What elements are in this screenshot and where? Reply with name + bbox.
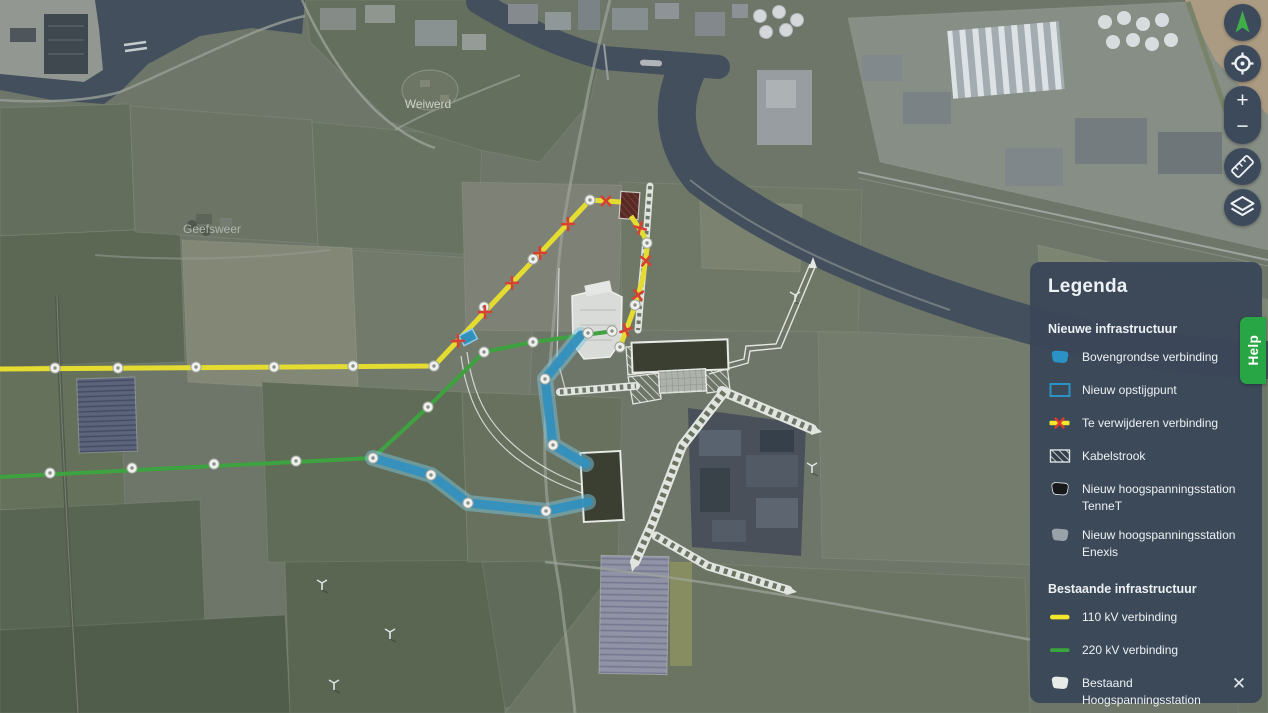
legend-item-label: Te verwijderen verbinding	[1082, 413, 1218, 432]
legend-panel: Legenda Nieuwe infrastructuur Bovengrond…	[1030, 262, 1262, 703]
measure-button[interactable]	[1224, 148, 1261, 185]
legend-item-label: Bovengrondse verbinding	[1082, 347, 1218, 366]
legend-item-connection-to-remove: Te verwijderen verbinding	[1048, 413, 1252, 437]
green-line-icon	[1048, 640, 1074, 664]
locate-button[interactable]	[1224, 45, 1261, 82]
ruler-icon	[1224, 148, 1261, 185]
map-controls: + −	[1224, 4, 1262, 226]
legend-item-new-substation-tennet: Nieuw hoogspanningsstation TenneT	[1048, 479, 1252, 516]
gray-blob-icon	[1048, 525, 1074, 549]
yellow-line-icon	[1048, 607, 1074, 631]
zoom-in-button[interactable]: +	[1224, 86, 1261, 114]
legend-section-new-header: Nieuwe infrastructuur	[1048, 322, 1252, 336]
legend-item-label: Nieuw hoogspanningsstation TenneT	[1082, 479, 1252, 516]
hatched-square-icon	[1048, 446, 1074, 470]
legend-close-button[interactable]: ✕	[1228, 673, 1250, 695]
layers-button[interactable]	[1224, 189, 1261, 226]
locate-icon	[1224, 45, 1261, 82]
help-tab-label: Help	[1246, 335, 1261, 365]
legend-item-label: 220 kV verbinding	[1082, 640, 1178, 659]
white-blob-icon	[1048, 673, 1074, 697]
black-blob-icon	[1048, 479, 1074, 503]
legend-item-label: Nieuw opstijgpunt	[1082, 380, 1177, 399]
compass-button[interactable]	[1224, 4, 1261, 41]
zoom-out-button[interactable]: −	[1224, 114, 1261, 144]
app-window: Weiwerd Geefsweer	[0, 0, 1268, 713]
legend-section-existing-header: Bestaande infrastructuur	[1048, 582, 1252, 596]
yellow-dash-red-x-icon	[1048, 413, 1074, 437]
zoom-control: + −	[1224, 86, 1261, 144]
legend-item-110kv: 110 kV verbinding	[1048, 607, 1252, 631]
legend-item-riser-point: Nieuw opstijgpunt	[1048, 380, 1252, 404]
legend-item-overhead-connection: Bovengrondse verbinding	[1048, 347, 1252, 371]
help-tab[interactable]: Help	[1240, 317, 1266, 384]
legend-item-label: Kabelstrook	[1082, 446, 1145, 465]
blue-blob-icon	[1048, 347, 1074, 371]
legend-item-label: Nieuw hoogspanningsstation Enexis	[1082, 525, 1252, 562]
legend-title: Legenda	[1048, 276, 1252, 298]
layers-icon	[1224, 189, 1261, 226]
legend-item-label: 110 kV verbinding	[1082, 607, 1177, 626]
legend-item-220kv: 220 kV verbinding	[1048, 640, 1252, 664]
legend-item-existing-substation: Bestaand Hoogspanningsstation	[1048, 673, 1252, 710]
legend-item-new-substation-enexis: Nieuw hoogspanningsstation Enexis	[1048, 525, 1252, 562]
blue-square-outline-icon	[1048, 380, 1074, 404]
legend-item-cable-corridor: Kabelstrook	[1048, 446, 1252, 470]
legend-item-label: Bestaand Hoogspanningsstation	[1082, 673, 1252, 710]
north-arrow-icon	[1224, 4, 1261, 41]
